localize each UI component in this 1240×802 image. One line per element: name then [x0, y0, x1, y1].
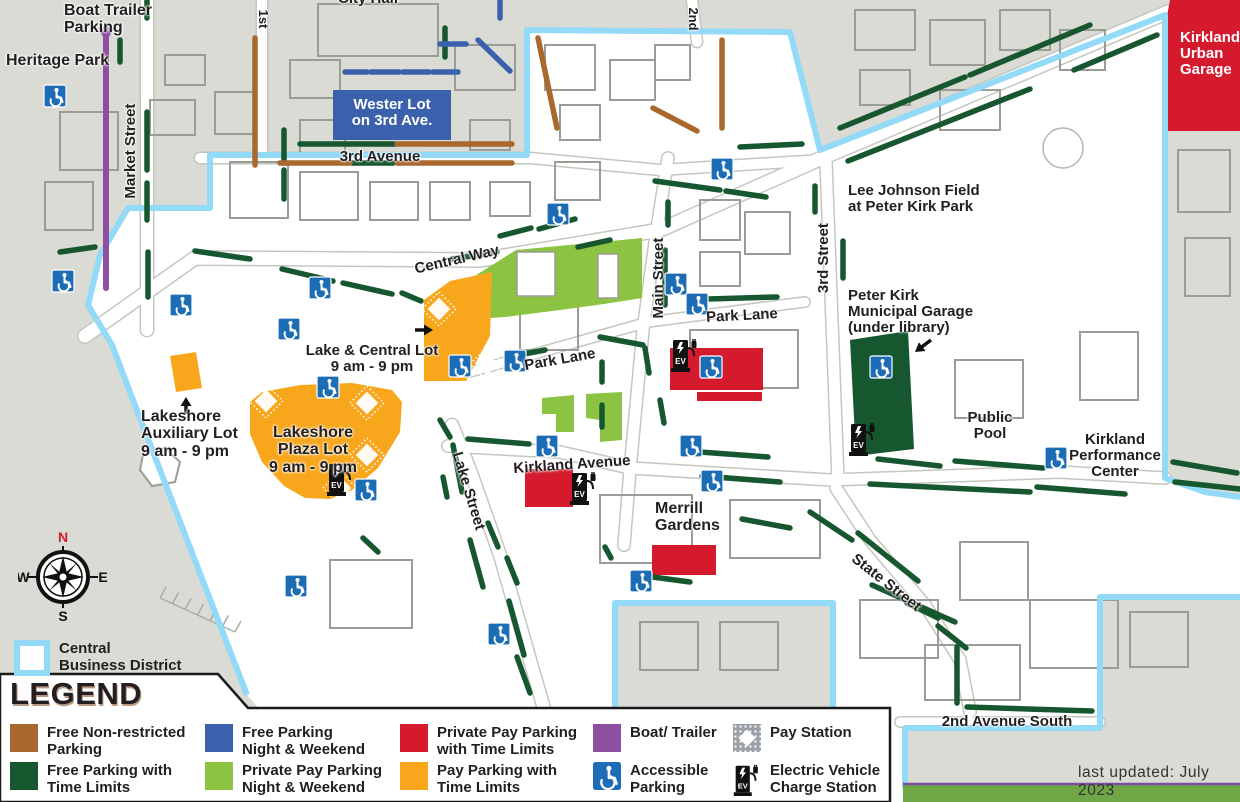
accessible-parking-icon: [449, 355, 471, 377]
accessible-parking-icon: [630, 570, 652, 592]
grass-strip: [903, 784, 1240, 802]
label-lakeshore-auxiliary-lot: Lakeshore Auxiliary Lot 9 am - 9 pm: [141, 408, 238, 460]
label-wester-lot: Wester Lot on 3rd Ave.: [352, 97, 433, 129]
label-second-avenue-south: 2nd Avenue South: [942, 714, 1073, 730]
accessible-parking-icon: [504, 350, 526, 372]
label-heritage-park: Heritage Park: [6, 52, 109, 69]
accessible-parking-icon: [285, 575, 307, 597]
accessible-parking-icon: [686, 293, 708, 315]
accessible-parking-icon: [711, 158, 733, 180]
parking-segment-green: [740, 144, 802, 147]
svg-text:EV: EV: [574, 490, 585, 499]
building-footprint: [517, 252, 555, 296]
svg-text:EV: EV: [853, 441, 864, 450]
accessible-parking-icon: [317, 376, 339, 398]
accessible-parking-icon: [278, 318, 300, 340]
accessible-parking-icon: [309, 277, 331, 299]
parking-segment-green: [443, 477, 447, 497]
lot-private-pay-time-limits: [652, 545, 716, 575]
compass-south: S: [58, 608, 67, 622]
accessible-parking-icon: [170, 294, 192, 316]
label-second-street: 2nd: [686, 7, 700, 30]
accessible-parking-icon: [700, 356, 722, 378]
label-first-street: 1st: [256, 10, 270, 29]
svg-text:EV: EV: [331, 481, 342, 490]
label-main-street: Main Street: [651, 238, 667, 319]
accessible-parking-icon: [701, 470, 723, 492]
accessible-parking-icon: [355, 479, 377, 501]
label-market-street: Market Street: [123, 104, 139, 199]
accessible-parking-icon: [1045, 447, 1067, 469]
label-peter-kirk-garage: Peter Kirk Municipal Garage (under libra…: [848, 288, 973, 337]
accessible-parking-icon: [870, 356, 892, 378]
compass-north: N: [58, 532, 68, 545]
accessible-parking-icon: [547, 203, 569, 225]
lot-private-pay-time-limits: [697, 392, 762, 401]
compass-rose: N S W E: [18, 532, 108, 622]
parking-segment-green: [708, 297, 777, 299]
label-lake-central-lot: Lake & Central Lot 9 am - 9 pm: [306, 343, 439, 375]
compass-graphic: [28, 546, 98, 608]
label-boat-trailer-parking: Boat Trailer Parking: [64, 2, 152, 37]
label-kirkland-urban-garage: Kirkland Urban Garage: [1180, 30, 1240, 79]
label-third-avenue: 3rd Avenue: [340, 149, 421, 165]
svg-text:EV: EV: [675, 357, 686, 366]
label-third-street: 3rd Street: [816, 223, 832, 293]
parking-map-page: EVEVEVEV Boat Trailer ParkingHeritage Pa…: [0, 0, 1240, 802]
accessible-parking-icon: [488, 623, 510, 645]
label-public-pool: Public Pool: [967, 410, 1012, 442]
accessible-parking-icon: [44, 85, 66, 107]
label-lee-johnson-field: Lee Johnson Field at Peter Kirk Park: [848, 183, 980, 215]
label-lakeshore-plaza-lot: Lakeshore Plaza Lot 9 am - 9 pm: [269, 424, 357, 476]
building-footprint: [598, 254, 618, 298]
accessible-parking-icon: [680, 435, 702, 457]
label-kirkland-performance-center: Kirkland Performance Center: [1069, 432, 1161, 481]
compass-west: W: [18, 569, 30, 585]
compass-east: E: [98, 569, 107, 585]
accessible-parking-icon: [52, 270, 74, 292]
accessible-parking-icon: [665, 273, 687, 295]
accessible-parking-icon: [536, 435, 558, 457]
outside-cbd-region: [615, 603, 833, 710]
label-city-hall: City Hall: [338, 0, 398, 7]
label-merrill-gardens: Merrill Gardens: [655, 500, 720, 535]
map-canvas: EVEVEVEV: [0, 0, 1240, 802]
